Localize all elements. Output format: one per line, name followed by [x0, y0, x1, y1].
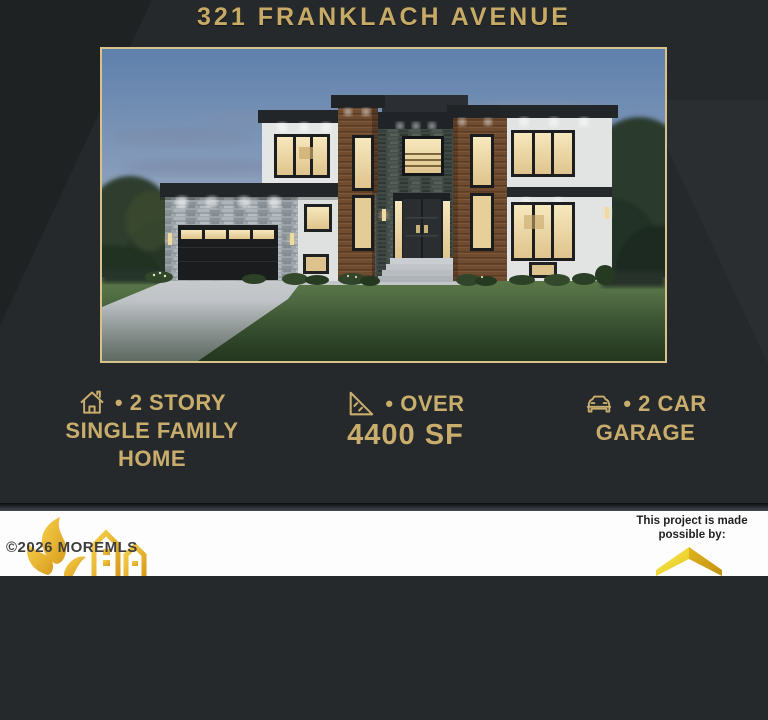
band-divider — [0, 503, 768, 511]
feature-line: • 2 STORY — [115, 389, 226, 417]
feature-line: 4400 SF — [308, 421, 503, 449]
bottom-band: ©2026 MOREMLS This project is made possi… — [0, 511, 768, 576]
sponsor-line: possible by: — [618, 528, 766, 542]
feature-line: HOME — [28, 445, 276, 473]
car-icon — [584, 389, 614, 419]
house-rendering — [102, 49, 665, 361]
mls-copyright-text: ©2026 MOREMLS — [6, 539, 138, 556]
sponsor-caption: This project is made possible by: — [618, 514, 766, 542]
feature-garage: • 2 CAR GARAGE — [543, 389, 748, 447]
area-ruler-icon — [346, 389, 376, 419]
page-title: 321 FRANKLACH AVENUE — [0, 3, 768, 32]
house-photo-frame — [100, 47, 667, 363]
house-icon — [78, 389, 106, 417]
feature-line: SINGLE FAMILY — [28, 417, 276, 445]
mls-watermark: ©2026 MOREMLS — [6, 511, 176, 576]
sponsor-line: This project is made — [618, 514, 766, 528]
listing-flyer: { "title": "321 FRANKLACH AVENUE", "feat… — [0, 0, 768, 576]
feature-line: • 2 CAR — [623, 390, 706, 418]
feature-line: • OVER — [385, 390, 464, 418]
feature-square-feet: • OVER 4400 SF — [308, 389, 503, 449]
garage — [160, 183, 342, 281]
entry-steps — [378, 258, 466, 282]
feature-2-story: • 2 STORY SINGLE FAMILY HOME — [28, 389, 276, 473]
left-wing — [258, 110, 342, 183]
sponsor-logo-icon — [656, 547, 722, 576]
right-wood-tower — [447, 105, 511, 281]
feature-line: GARAGE — [543, 419, 748, 447]
right-wing — [500, 105, 618, 281]
